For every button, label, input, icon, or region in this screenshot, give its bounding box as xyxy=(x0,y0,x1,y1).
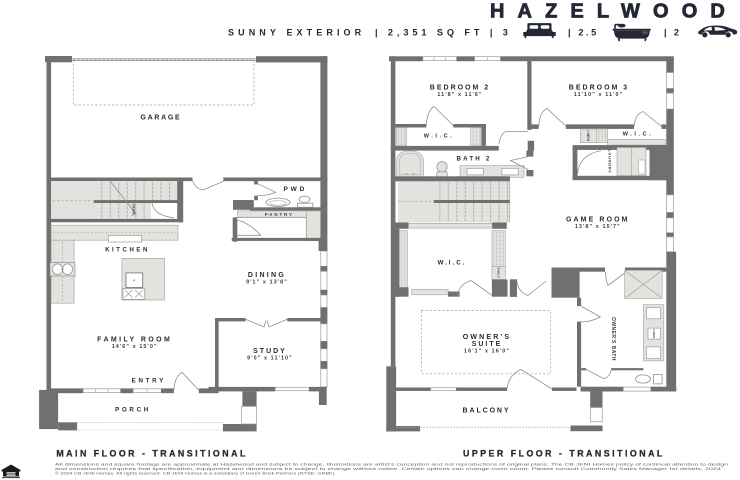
svg-text:LINEN: LINEN xyxy=(586,131,590,142)
svg-text:OWNER'S BATH: OWNER'S BATH xyxy=(610,317,616,361)
svg-text:BEDROOM 2: BEDROOM 2 xyxy=(430,84,490,91)
svg-text:OWNER'S: OWNER'S xyxy=(463,334,512,341)
svg-text:9'0" x 11'10": 9'0" x 11'10" xyxy=(247,355,293,361)
svg-text:11'8" x 11'6": 11'8" x 11'6" xyxy=(437,92,482,98)
svg-text:W.I.C.: W.I.C. xyxy=(424,134,455,140)
svg-text:GARAGE: GARAGE xyxy=(140,114,181,121)
svg-text:14'6" x 15'0": 14'6" x 15'0" xyxy=(112,344,158,350)
svg-text:ENTRY: ENTRY xyxy=(132,377,166,384)
svg-text:| 2: | 2 xyxy=(664,28,681,38)
svg-text:PWD: PWD xyxy=(284,186,308,193)
svg-text:BATH 2: BATH 2 xyxy=(456,156,491,163)
svg-text:All dimensions and square foot: All dimensions and square footage are ap… xyxy=(55,463,728,467)
svg-text:| 2.5: | 2.5 xyxy=(568,28,599,38)
svg-text:PORCH: PORCH xyxy=(115,407,151,414)
svg-text:9'1" x 13'8": 9'1" x 13'8" xyxy=(246,280,288,286)
svg-text:LAUNDRY: LAUNDRY xyxy=(607,149,612,173)
svg-text:and construction requires that: and construction requires that specifica… xyxy=(55,467,721,471)
svg-text:16'1" x 16'0": 16'1" x 16'0" xyxy=(464,349,510,355)
svg-text:SHELF: SHELF xyxy=(496,267,500,278)
svg-text:SUITE: SUITE xyxy=(472,341,503,348)
svg-text:© 2024 CB JENI Homes. All righ: © 2024 CB JENI Homes. All rights reserve… xyxy=(55,471,336,475)
svg-text:W.I.C.: W.I.C. xyxy=(623,132,654,138)
svg-text:CRAWL: CRAWL xyxy=(132,204,136,217)
svg-text:PANTRY: PANTRY xyxy=(265,212,294,217)
svg-text:GAME ROOM: GAME ROOM xyxy=(566,216,630,223)
svg-text:BEDROOM 3: BEDROOM 3 xyxy=(569,84,629,91)
svg-text:FAMILY ROOM: FAMILY ROOM xyxy=(97,336,172,343)
svg-text:| 2,351 SQ FT | 3: | 2,351 SQ FT | 3 xyxy=(375,28,512,38)
svg-text:MAIN FLOOR - TRANSITIONAL: MAIN FLOOR - TRANSITIONAL xyxy=(56,448,248,458)
svg-text:STUDY: STUDY xyxy=(253,348,287,355)
svg-text:DINING: DINING xyxy=(248,272,286,279)
svg-text:SUNNY EXTERIOR: SUNNY EXTERIOR xyxy=(228,28,365,38)
svg-text:11'10" x 11'0": 11'10" x 11'0" xyxy=(574,92,623,98)
svg-text:LINEN: LINEN xyxy=(652,329,656,338)
svg-text:UPPER FLOOR - TRANSITIONAL: UPPER FLOOR - TRANSITIONAL xyxy=(463,448,665,458)
svg-text:KITCHEN: KITCHEN xyxy=(105,248,150,254)
svg-text:13'8" x 15'7": 13'8" x 15'7" xyxy=(575,224,621,230)
svg-text:BALCONY: BALCONY xyxy=(463,408,511,415)
svg-text:HAZELWOOD: HAZELWOOD xyxy=(490,1,738,23)
svg-text:W.I.C.: W.I.C. xyxy=(438,260,467,267)
